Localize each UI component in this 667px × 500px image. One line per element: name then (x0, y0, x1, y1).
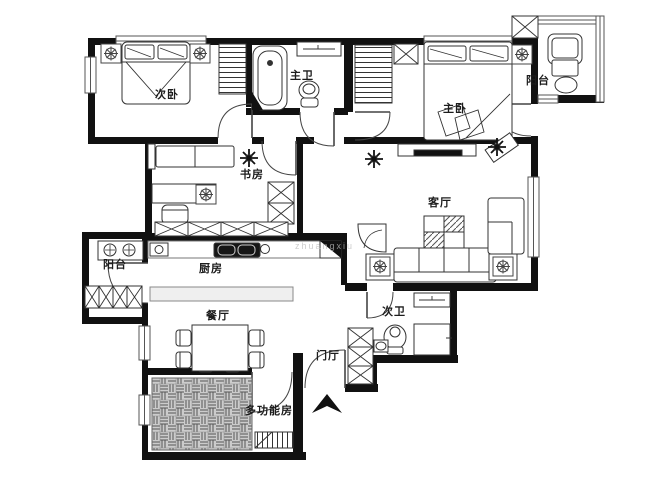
kitchen-sink (214, 243, 270, 257)
sofa (394, 248, 496, 282)
shoe-cabinet (255, 432, 293, 448)
nightstand-lamp (190, 44, 210, 63)
plant-icon (365, 150, 383, 168)
fan-chair (358, 224, 386, 252)
floor-plan-canvas: 次卧 主卫 主卧 阳台 书房 客厅 阳台 厨房 餐厅 次卫 门厅 多功能房 zh… (0, 0, 667, 500)
room-label-entry-hall: 门厅 (316, 347, 340, 363)
dining-room-furniture (176, 325, 264, 372)
watermark: zhuangxiu (295, 241, 354, 251)
side-table (148, 144, 155, 169)
room-label-balcony-top-right: 阳台 (526, 72, 550, 88)
room-label-multi-function-room: 多功能房 (245, 402, 293, 418)
wardrobe (219, 44, 246, 94)
room-label-secondary-bedroom: 次卧 (155, 86, 179, 102)
side-table (552, 60, 578, 76)
desk-lamp (196, 185, 216, 204)
nightstand-lamp (101, 44, 121, 63)
balcony-top-right-furniture (548, 34, 582, 93)
dining-table (192, 325, 248, 371)
nightstand-lamp (512, 45, 532, 64)
plant-icon (240, 149, 258, 167)
wardrobe (355, 45, 392, 103)
kitchen-island (150, 287, 293, 301)
storage-cabinet (85, 286, 142, 308)
tv (414, 150, 462, 156)
room-label-living-room: 客厅 (428, 194, 452, 210)
coffee-table (424, 216, 464, 248)
table-lamp (493, 257, 513, 276)
desk-chair (162, 205, 188, 224)
entry-cabinet (348, 328, 373, 384)
study-furniture (148, 144, 294, 236)
room-label-secondary-bathroom: 次卫 (382, 303, 406, 319)
tatami-floor (152, 378, 252, 450)
room-label-master-bedroom: 主卧 (443, 100, 467, 116)
room-label-master-bathroom: 主卫 (290, 67, 314, 83)
round-stool (555, 77, 577, 93)
shower (414, 324, 452, 355)
room-label-balcony-left: 阳台 (103, 256, 127, 272)
table-lamp (370, 257, 390, 276)
room-label-dining-room: 餐厅 (206, 307, 230, 323)
master-bedroom-furniture (355, 16, 538, 140)
armchair (488, 198, 524, 254)
room-label-study: 书房 (240, 166, 264, 182)
north-arrow-icon (312, 394, 342, 413)
room-label-kitchen: 厨房 (199, 260, 223, 276)
